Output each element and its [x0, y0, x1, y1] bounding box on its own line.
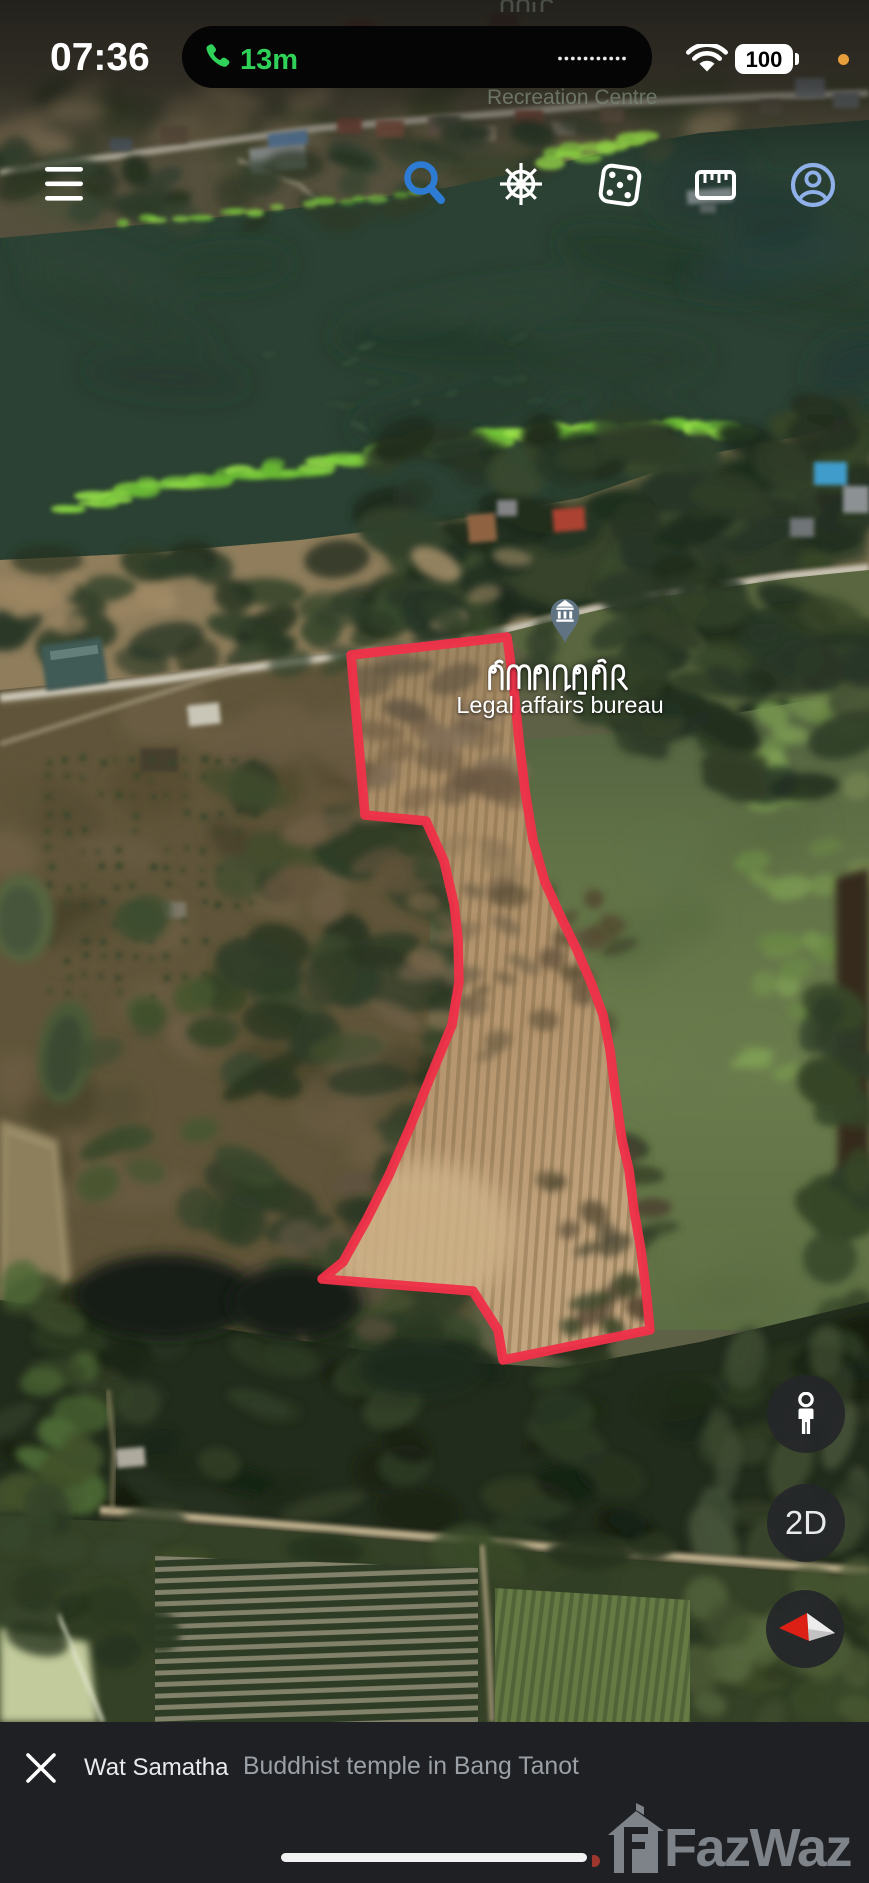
svg-text:FazWaz: FazWaz	[664, 1818, 852, 1878]
